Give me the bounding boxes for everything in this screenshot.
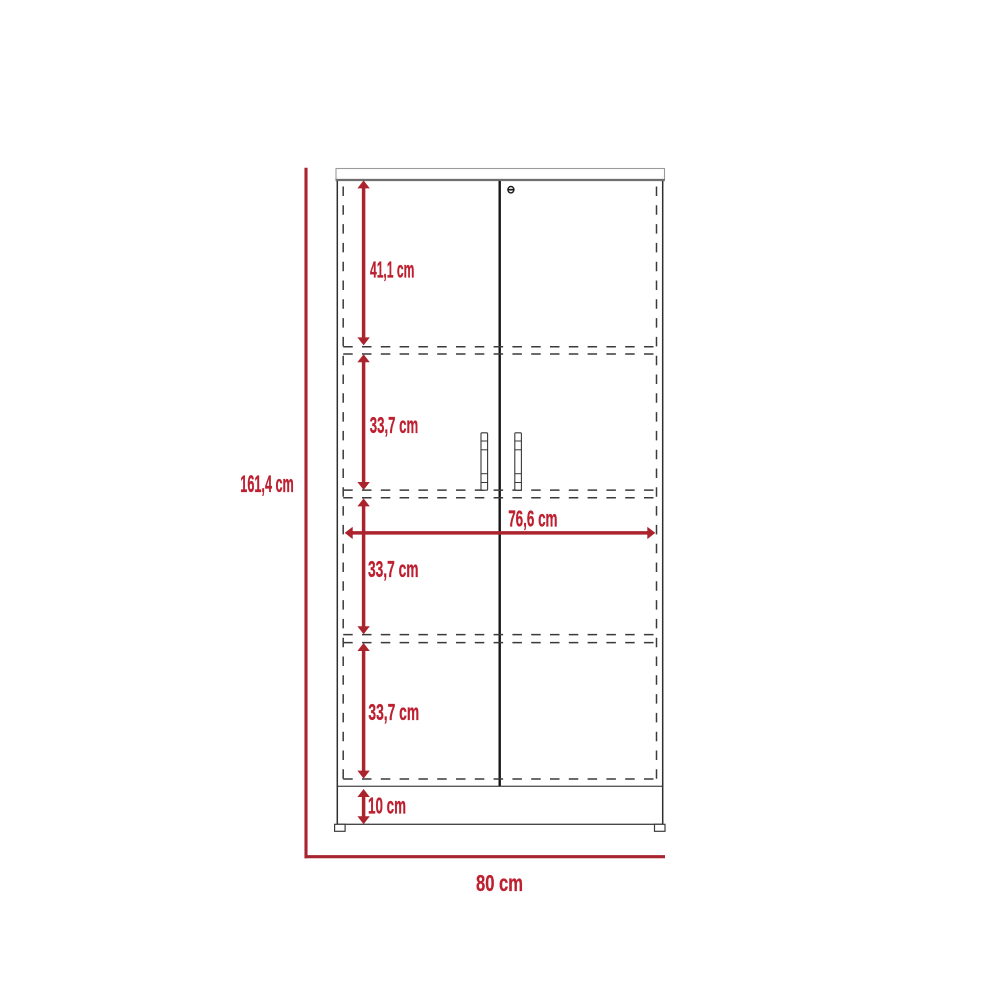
svg-text:33,7 cm: 33,7 cm xyxy=(368,556,419,582)
svg-text:76,6 cm: 76,6 cm xyxy=(508,505,557,531)
svg-text:33,7 cm: 33,7 cm xyxy=(370,412,418,438)
svg-text:33,7 cm: 33,7 cm xyxy=(368,699,419,725)
svg-text:161,4 cm: 161,4 cm xyxy=(240,471,293,498)
svg-text:80 cm: 80 cm xyxy=(476,870,523,896)
svg-text:41,1 cm: 41,1 cm xyxy=(370,256,414,282)
svg-text:10 cm: 10 cm xyxy=(368,793,406,819)
